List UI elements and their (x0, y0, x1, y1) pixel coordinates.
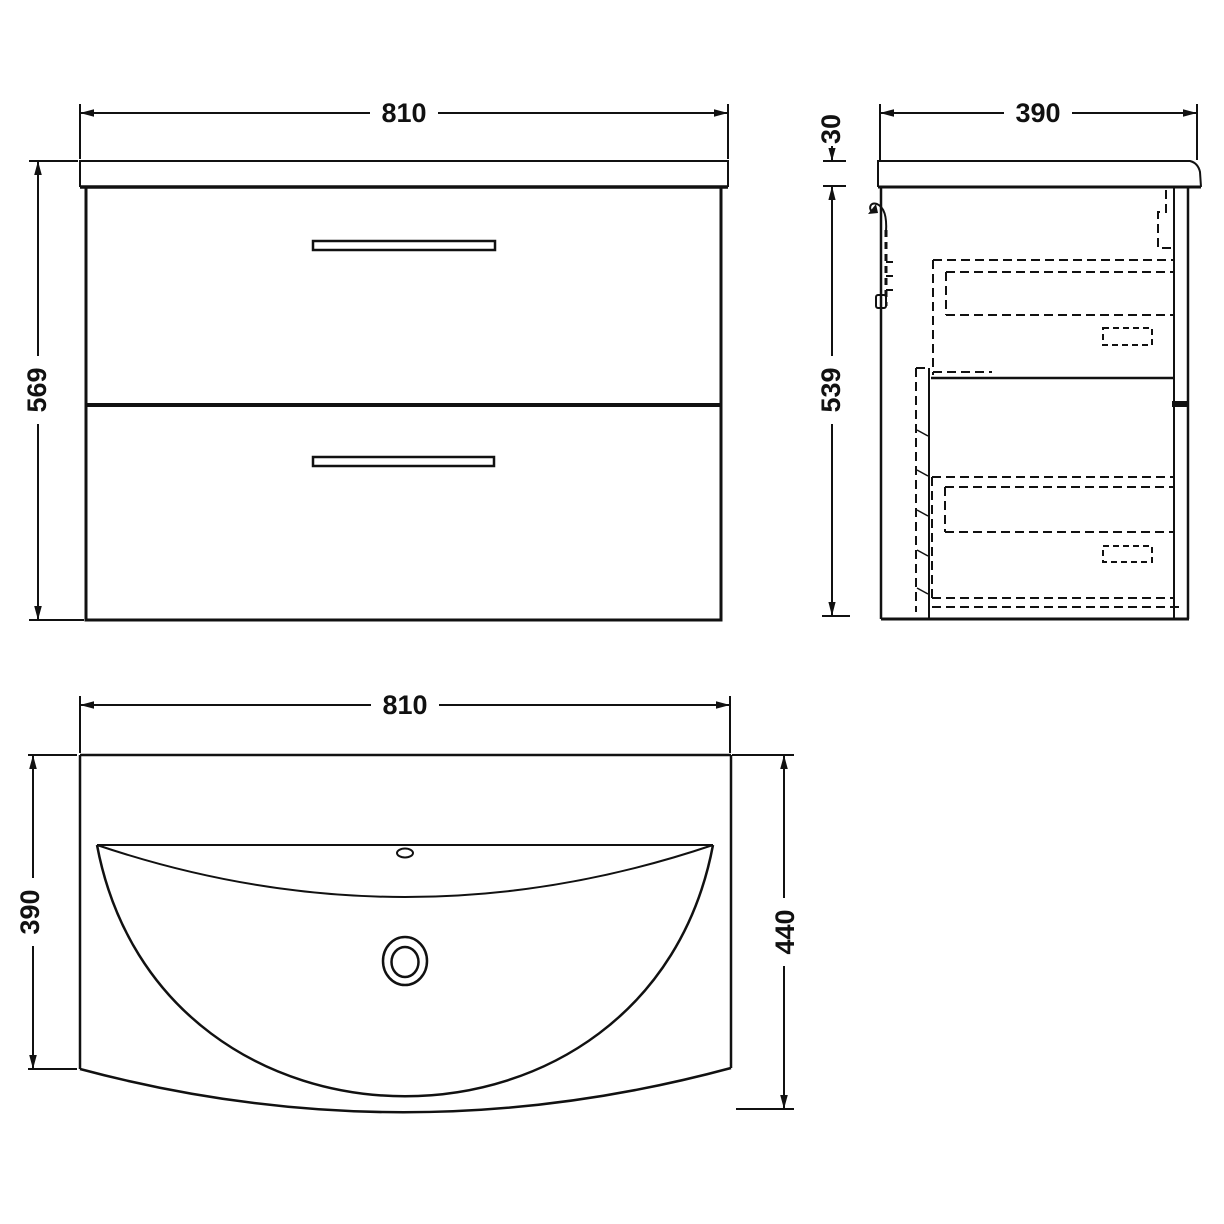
side-height-dimension: 539 (816, 186, 850, 616)
dim-label-plan-basin-depth: 390 (15, 889, 45, 934)
basin-bowl-outline (97, 845, 713, 1096)
dim-label-plan-total-depth: 440 (770, 909, 800, 954)
dim-label-side-depth: 390 (1015, 98, 1060, 128)
side-depth-dimension: 390 (880, 98, 1197, 160)
plan-total-depth-dimension: 440 (732, 755, 800, 1109)
side-drawer-front-edge (1172, 188, 1189, 619)
drain-symbol (383, 937, 427, 985)
dim-label-front-height: 569 (22, 367, 52, 412)
side-worktop (878, 161, 1201, 187)
dim-label-side-height: 539 (816, 367, 846, 412)
overflow-symbol (397, 849, 413, 858)
drawing-page: 810 569 (0, 0, 1224, 1224)
dim-label-front-width: 810 (381, 98, 426, 128)
plan-width-dimension: 810 (80, 690, 730, 753)
drawing-canvas: 810 569 (0, 0, 1224, 1224)
front-drawer-handle-top (313, 241, 495, 250)
front-view: 810 569 (22, 98, 728, 620)
plan-view: 810 390 440 (15, 690, 800, 1112)
dim-label-worktop-thickness: 30 (816, 114, 846, 144)
side-back-rail-section (917, 368, 929, 619)
side-view: 390 30 539 (816, 98, 1201, 619)
plan-basin-depth-dimension: 390 (15, 755, 77, 1069)
front-height-dimension: 569 (22, 161, 84, 620)
front-worktop (80, 161, 728, 187)
front-drawer-handle-bottom (313, 457, 494, 466)
side-hidden-lines (916, 190, 1183, 612)
front-width-dimension: 810 (80, 98, 728, 159)
basin-outer-outline (80, 755, 731, 1112)
worktop-thickness-dimension: 30 (816, 114, 846, 186)
dim-label-plan-width: 810 (382, 690, 427, 720)
